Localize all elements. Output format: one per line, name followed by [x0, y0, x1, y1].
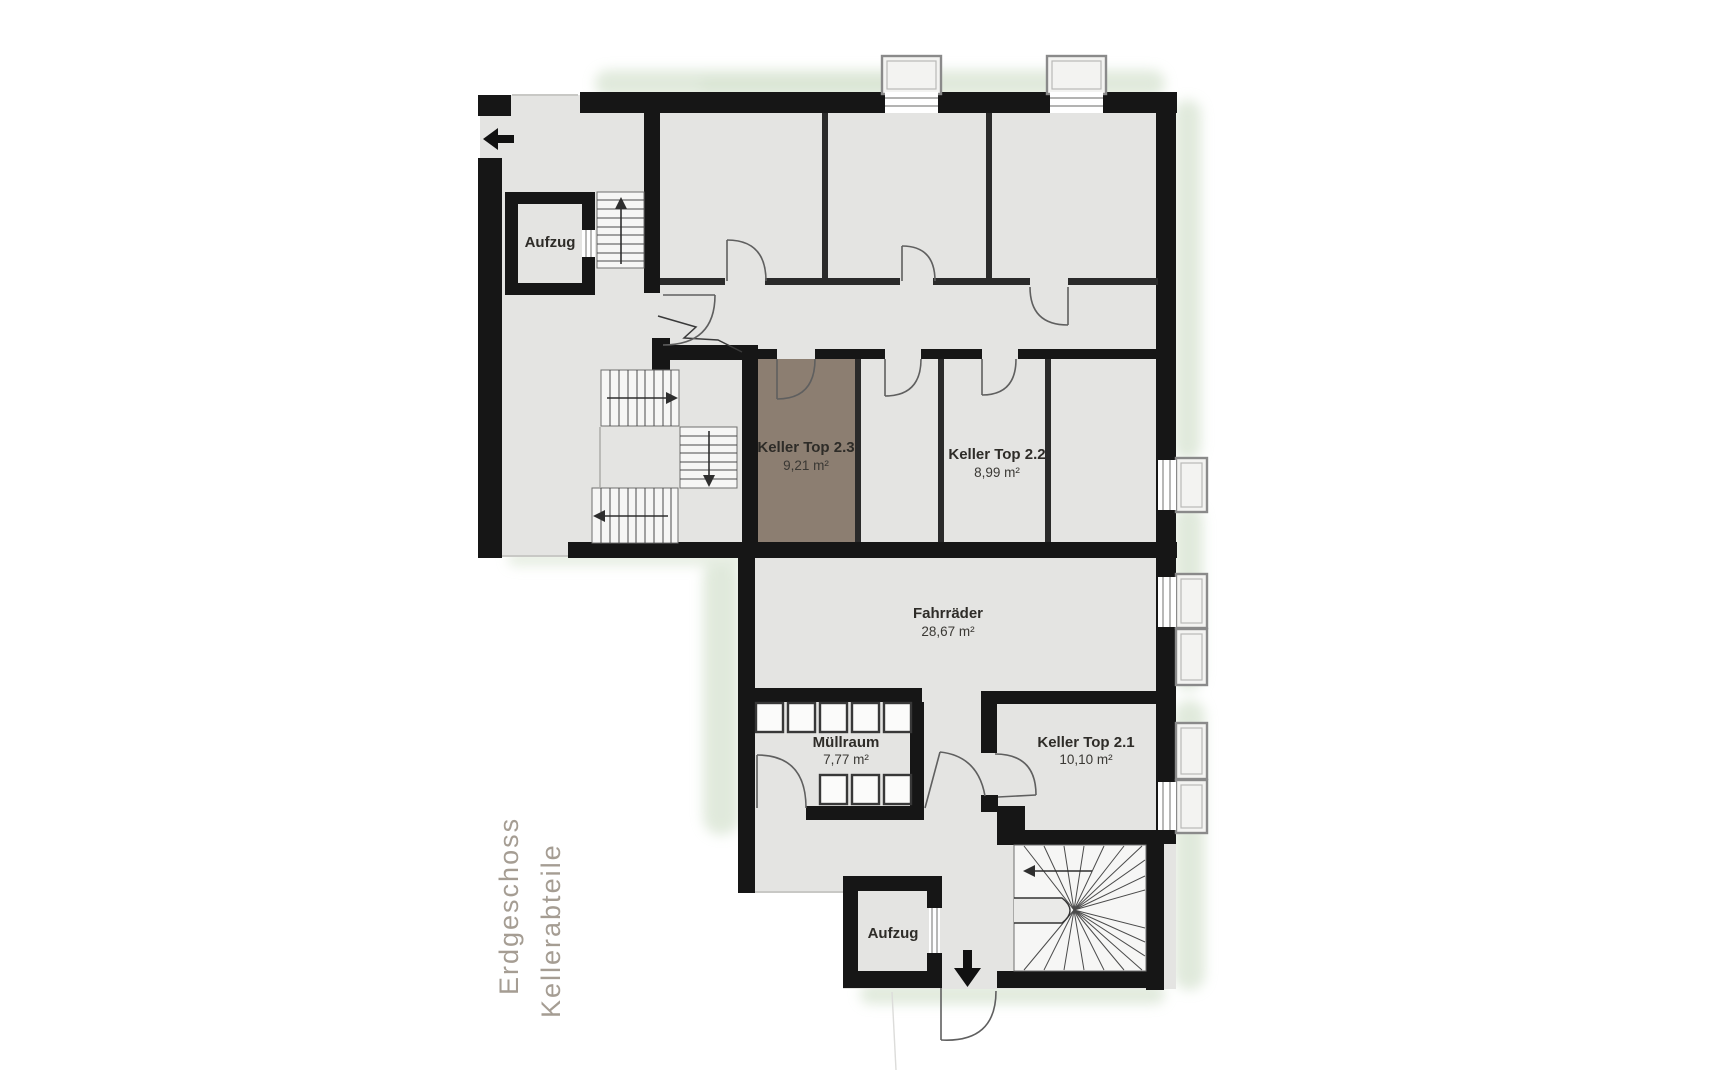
room-area-muellraum: 7,77 m²	[823, 752, 869, 767]
room-label-muellraum: Müllraum	[813, 734, 880, 751]
room-area-keller-2-2: 8,99 m²	[974, 465, 1020, 480]
floorplan-drawing: Aufzug Keller Top 2.3 9,21 m² Keller Top…	[0, 0, 1711, 1080]
room-area-keller-2-3: 9,21 m²	[783, 458, 829, 473]
room-area-keller-2-1: 10,10 m²	[1059, 752, 1113, 767]
window-east-1	[1158, 458, 1207, 512]
stairs-west-lower-flight	[592, 488, 678, 543]
stairs-north-hall	[597, 192, 644, 268]
floorplan-page: Aufzug Keller Top 2.3 9,21 m² Keller Top…	[0, 0, 1711, 1080]
caption-erdgeschoss: Erdgeschoss	[494, 817, 524, 995]
cellar-band-top-wall	[758, 349, 1158, 359]
room-label-keller-2-3: Keller Top 2.3	[757, 439, 854, 456]
caption-kellerabteile: Kellerabteile	[536, 843, 566, 1018]
stairs-west-middle-flight	[680, 427, 737, 488]
room-label-keller-2-1: Keller Top 2.1	[1037, 734, 1134, 751]
elevator-door-bottom	[929, 908, 940, 953]
window-north-2	[1047, 56, 1106, 113]
elevator-door-top	[582, 230, 595, 257]
room-label-aufzug-bottom: Aufzug	[868, 925, 919, 942]
window-north-1	[882, 56, 941, 113]
room-area-fahrraeder: 28,67 m²	[921, 624, 975, 639]
room-label-keller-2-2: Keller Top 2.2	[948, 446, 1045, 463]
room-label-fahrraeder: Fahrräder	[913, 605, 983, 622]
room-label-aufzug-top: Aufzug	[525, 234, 576, 251]
stairs-west-upper-flight	[601, 370, 679, 426]
stairs-south-fan	[1014, 845, 1146, 971]
